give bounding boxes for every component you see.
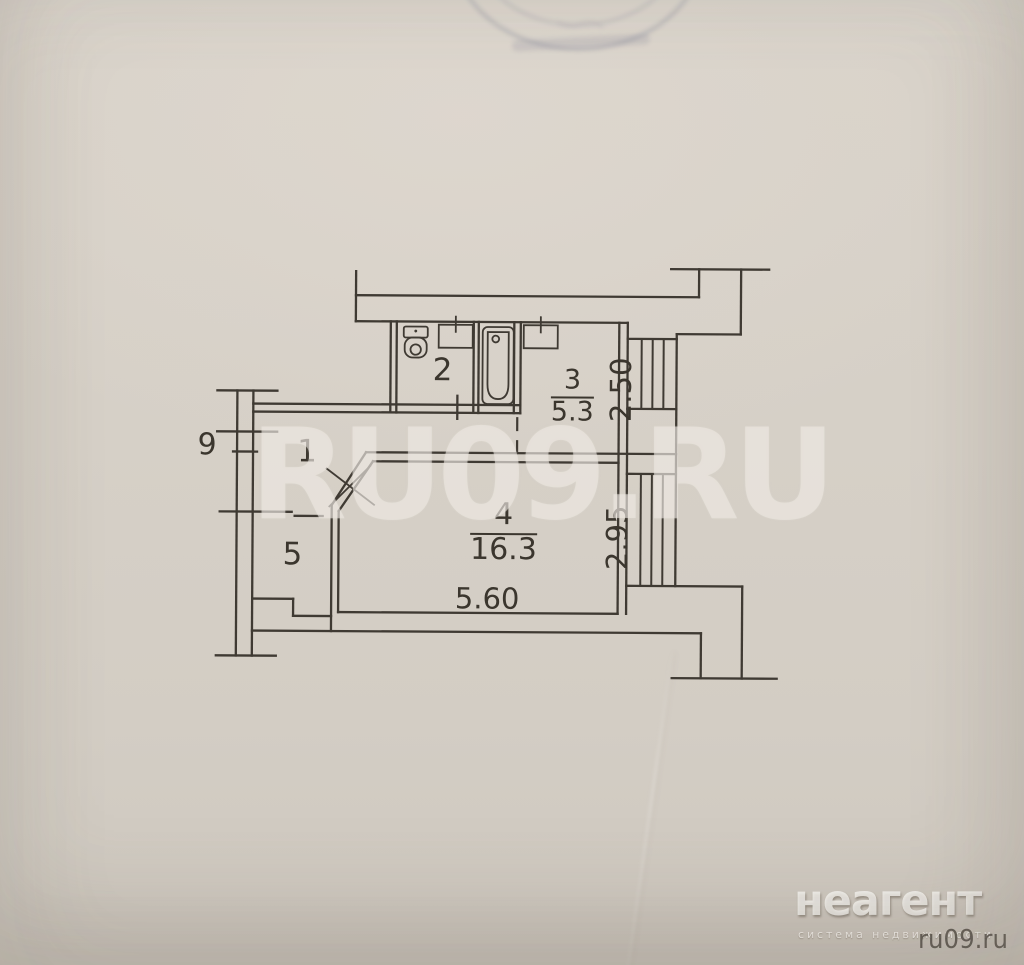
toilet-fixture <box>404 326 428 357</box>
bathtub-fixture <box>482 327 513 404</box>
washbasin-fixture <box>439 316 473 348</box>
room-4-length-dimension: 5.60 <box>455 584 520 613</box>
watermark: RU09.RU <box>250 412 830 538</box>
scanned-floorplan-photo: 1 2 5 9 3 5.3 4 16.3 2.50 2.95 5.60 RU09… <box>0 0 1024 965</box>
room-2-number: 2 <box>433 355 453 386</box>
fixtures <box>403 315 558 404</box>
room-3-number: 3 <box>551 366 594 398</box>
kitchen-sink-fixture <box>524 316 558 348</box>
exterior-mark: 9 <box>197 430 216 460</box>
